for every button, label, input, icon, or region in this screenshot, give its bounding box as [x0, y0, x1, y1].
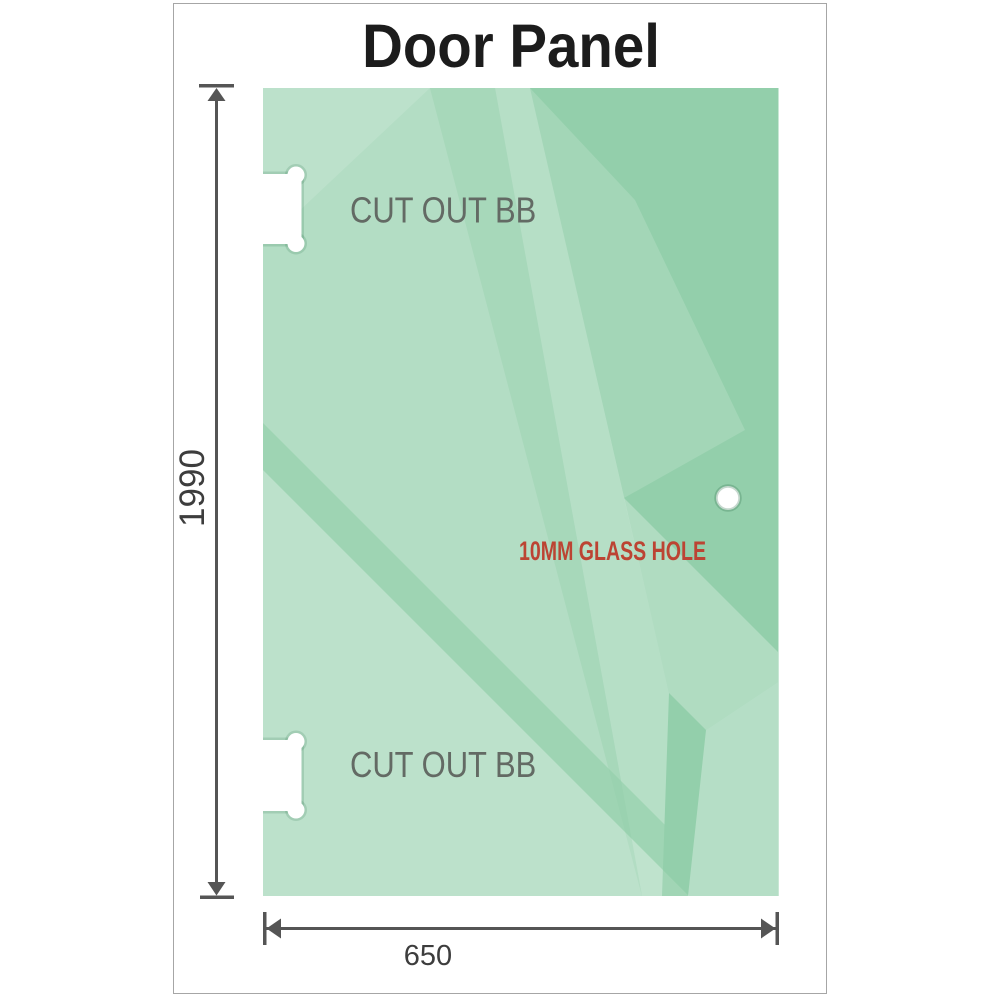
svg-text:10MM GLASS HOLE: 10MM GLASS HOLE — [519, 536, 706, 566]
svg-text:Door Panel: Door Panel — [362, 13, 660, 80]
svg-text:CUT OUT BB: CUT OUT BB — [350, 191, 536, 231]
svg-text:1990: 1990 — [173, 449, 212, 527]
svg-text:CUT OUT BB: CUT OUT BB — [350, 746, 536, 786]
svg-text:650: 650 — [404, 940, 452, 972]
